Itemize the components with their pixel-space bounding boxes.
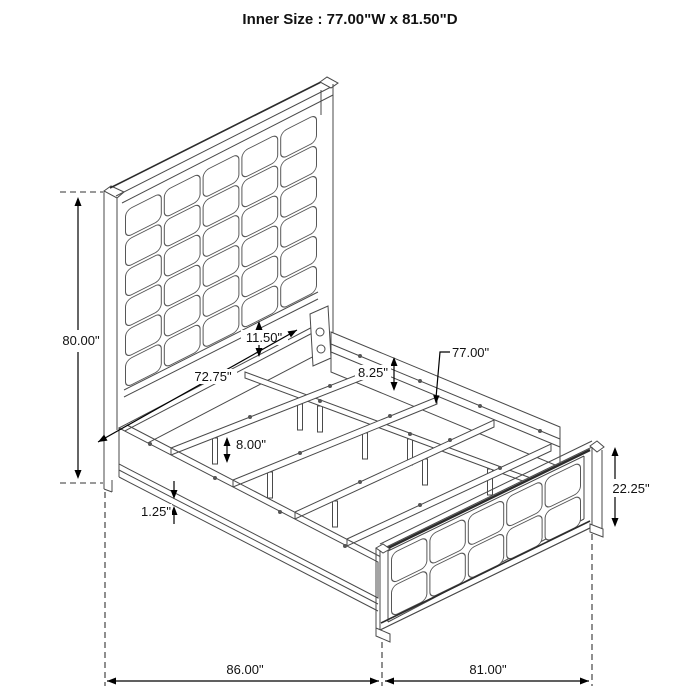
dim-label: 81.00" [469,662,507,677]
dim-headboard-height: 80.00" [59,197,103,479]
arrowhead [224,454,231,463]
corner-bracket [310,306,331,366]
arrowhead [107,678,116,685]
support-leg [268,472,273,498]
arrowhead [612,447,619,456]
diagram-canvas: 80.00" 11.50" 72.75" 8.25" [0,0,700,700]
slat [295,420,494,519]
arrowhead [385,678,394,685]
dim-label: 86.00" [226,662,264,677]
support-leg [363,433,368,459]
dim-leg-height: 8.00" [224,437,271,463]
support-leg [213,438,218,464]
dim-label: 11.50" [246,330,283,345]
support-leg [298,404,303,430]
footboard-right-post [590,441,604,537]
arrowhead [75,470,82,479]
dim-label: 1.25" [141,504,171,519]
bolt-hole [317,345,325,353]
arrowhead [256,321,263,330]
bolt-hole [316,328,324,336]
support-leg [333,501,338,527]
dim-label: 80.00" [62,333,100,348]
page-title: Inner Size : 77.00"W x 81.50"D [242,11,457,28]
dim-overall-depth: 86.00" [107,662,379,685]
dim-label: 72.75" [194,369,232,384]
dim-label: 22.25" [612,481,650,496]
bed-dimension-diagram: 80.00" 11.50" 72.75" 8.25" [0,0,700,700]
dim-label: 8.25" [358,365,388,380]
dim-label: 8.00" [236,437,266,452]
arrowhead [75,197,82,206]
arrowhead [98,435,108,443]
dim-label: 77.00" [452,345,490,360]
arrowhead [370,678,379,685]
support-leg [423,459,428,485]
dim-overall-width: 81.00" [385,662,589,685]
arrowhead [612,518,619,527]
support-leg [318,406,323,432]
arrowhead [580,678,589,685]
dim-footboard-height: 22.25" [606,447,656,527]
arrowhead [224,437,231,446]
